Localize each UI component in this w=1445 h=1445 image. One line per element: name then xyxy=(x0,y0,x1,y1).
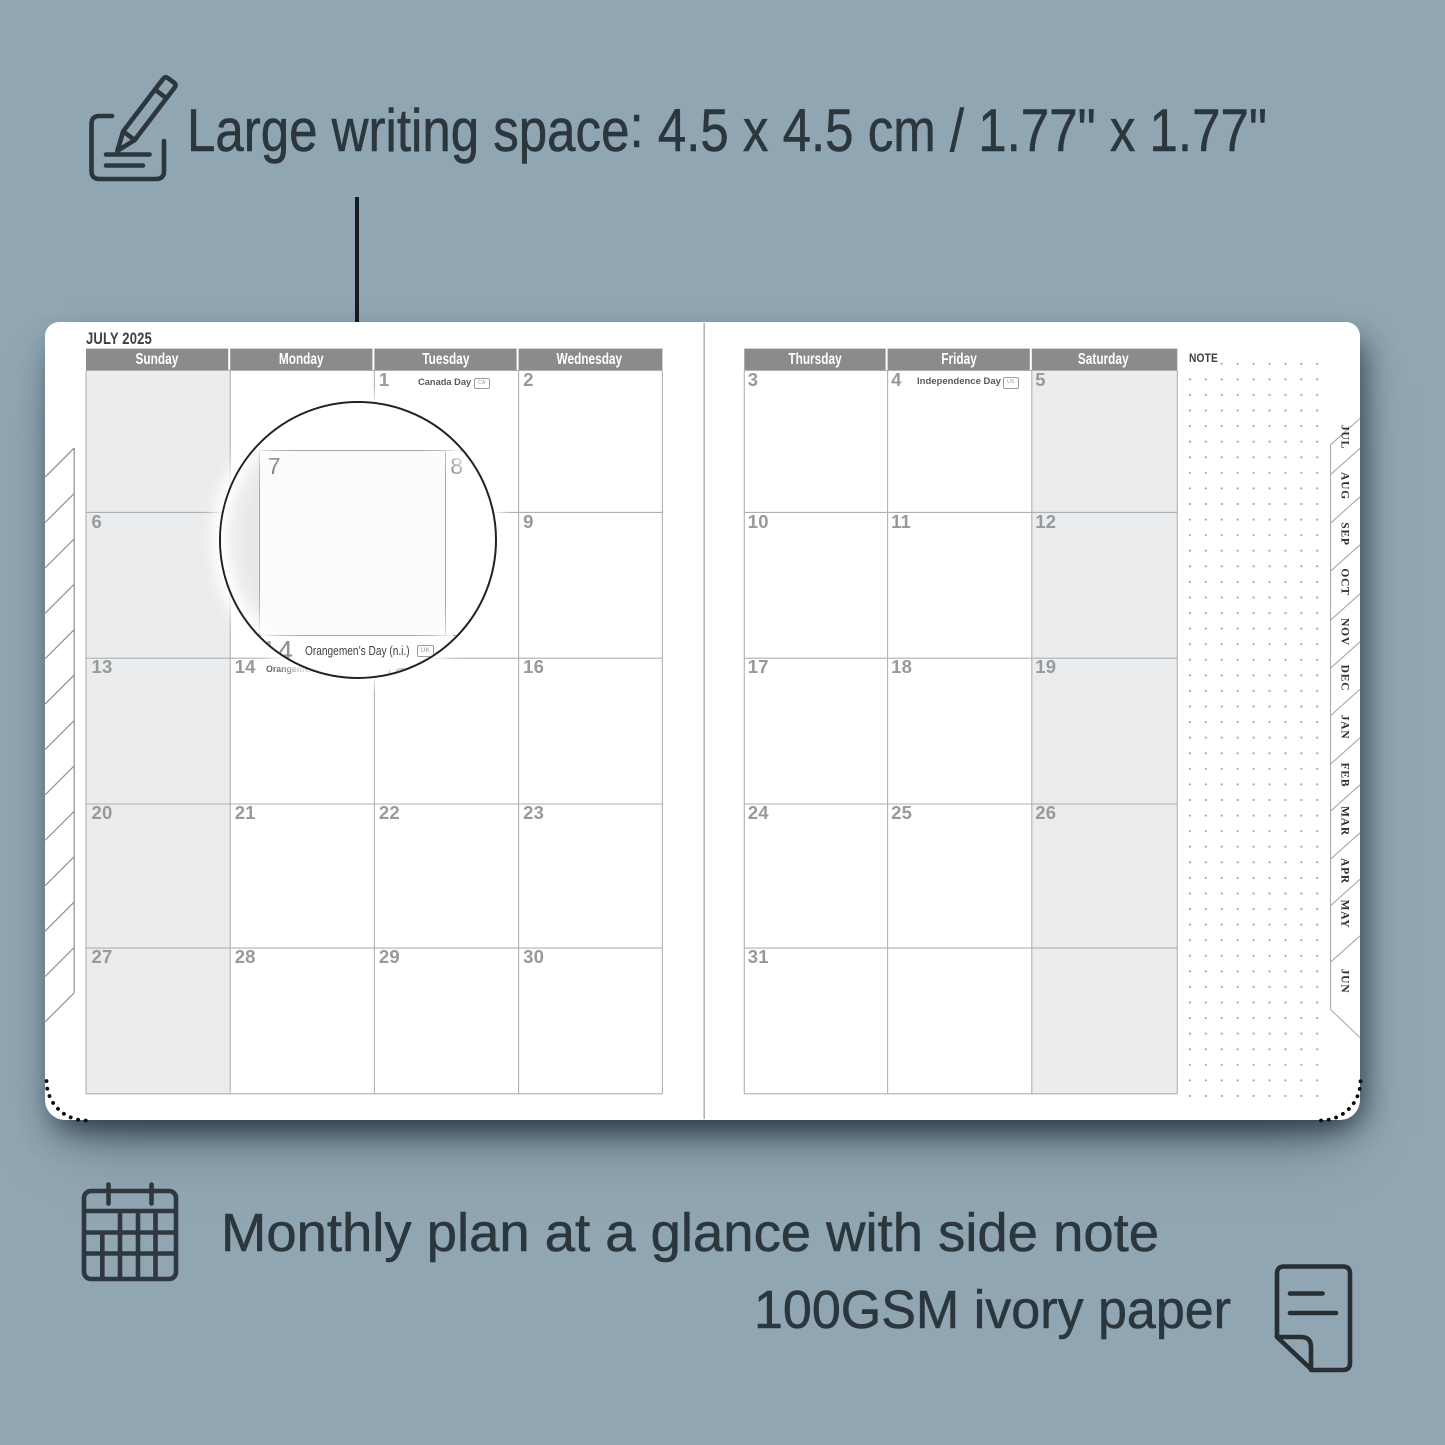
svg-text:SEP: SEP xyxy=(1339,522,1351,546)
svg-text:APR: APR xyxy=(1339,858,1351,884)
svg-text:OCT: OCT xyxy=(1339,568,1351,595)
svg-text:JUN: JUN xyxy=(1339,969,1351,994)
svg-text:FEB: FEB xyxy=(1339,763,1351,788)
svg-text:DEC: DEC xyxy=(1339,665,1351,692)
svg-text:NOV: NOV xyxy=(1339,618,1351,646)
svg-text:MAY: MAY xyxy=(1339,900,1351,929)
svg-text:MAR: MAR xyxy=(1339,806,1351,836)
svg-text:AUG: AUG xyxy=(1339,472,1351,500)
svg-text:JUL: JUL xyxy=(1339,425,1351,449)
svg-text:JAN: JAN xyxy=(1339,715,1351,740)
